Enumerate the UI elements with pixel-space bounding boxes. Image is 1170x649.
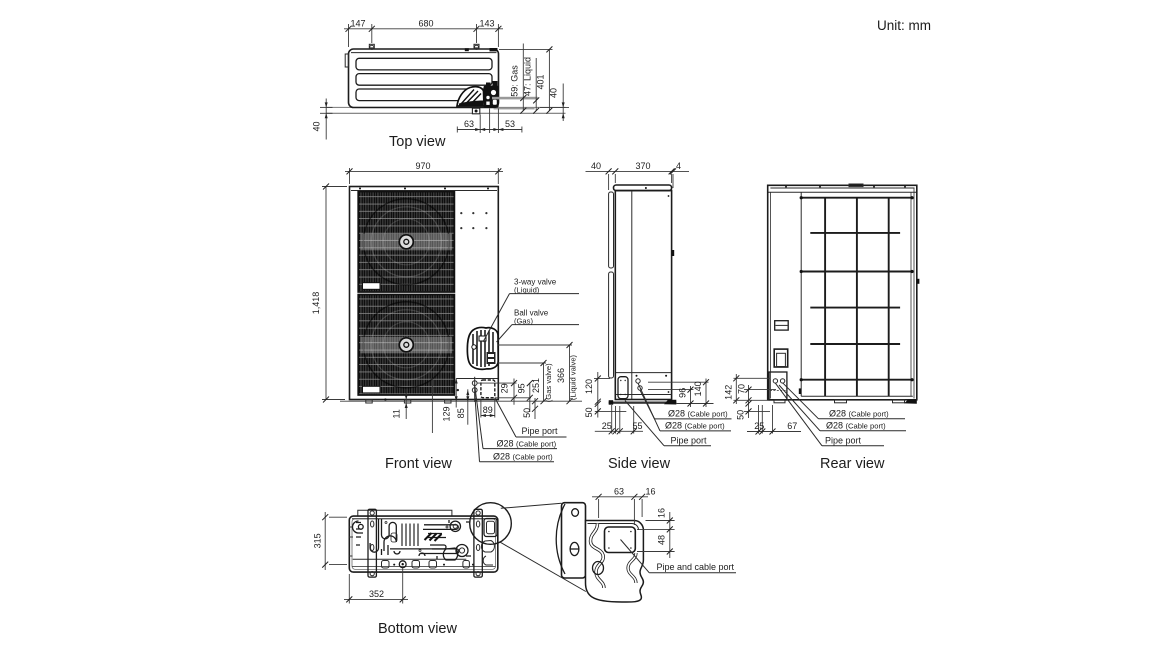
svg-text:Pipe port: Pipe port <box>671 435 708 445</box>
svg-text:680: 680 <box>418 19 433 29</box>
svg-text:Ø28 (Cable port): Ø28 (Cable port) <box>829 409 889 419</box>
svg-text:120: 120 <box>584 379 594 394</box>
svg-text:370: 370 <box>635 161 650 171</box>
svg-text:(Liquid valve): (Liquid valve) <box>568 354 577 400</box>
svg-text:50: 50 <box>584 407 594 417</box>
svg-text:70: 70 <box>736 384 746 394</box>
svg-text:40: 40 <box>591 161 601 171</box>
svg-text:Bottom view: Bottom view <box>378 621 457 637</box>
svg-text:11: 11 <box>391 409 401 418</box>
svg-text:40: 40 <box>312 121 322 131</box>
svg-text:16: 16 <box>657 508 667 518</box>
svg-text:63: 63 <box>614 486 624 496</box>
svg-text:50: 50 <box>522 408 532 418</box>
svg-text:140: 140 <box>693 381 703 396</box>
svg-text:29: 29 <box>500 383 510 393</box>
svg-text:63: 63 <box>464 119 474 129</box>
svg-text:95: 95 <box>517 383 527 393</box>
svg-text:40: 40 <box>549 88 559 98</box>
svg-text:143: 143 <box>479 19 494 29</box>
svg-text:129: 129 <box>442 406 452 421</box>
svg-text:1,418: 1,418 <box>311 292 321 315</box>
svg-text:48: 48 <box>657 535 667 545</box>
svg-text:251: 251 <box>531 378 541 393</box>
svg-text:Rear view: Rear view <box>820 456 885 472</box>
svg-text:Top view: Top view <box>389 134 446 150</box>
svg-text:366: 366 <box>556 368 566 383</box>
svg-text:Front view: Front view <box>385 456 452 472</box>
svg-text:53: 53 <box>505 119 515 129</box>
svg-text:Ø28 (Cable port): Ø28 (Cable port) <box>497 438 557 448</box>
svg-text:970: 970 <box>415 161 430 171</box>
svg-text:Ø28 (Cable port): Ø28 (Cable port) <box>668 409 728 419</box>
svg-text:Ø28 (Cable port): Ø28 (Cable port) <box>665 421 725 431</box>
svg-text:315: 315 <box>312 533 322 548</box>
svg-text:59: Gas: 59: Gas <box>509 65 519 97</box>
svg-text:(Gas valve): (Gas valve) <box>544 363 553 402</box>
svg-text:401: 401 <box>535 74 545 89</box>
svg-text:4: 4 <box>676 161 681 171</box>
svg-text:Pipe port: Pipe port <box>825 436 862 446</box>
svg-text:25: 25 <box>602 421 612 431</box>
svg-text:47: Liquid: 47: Liquid <box>522 57 532 96</box>
svg-text:85: 85 <box>456 408 466 418</box>
svg-text:16: 16 <box>645 486 655 496</box>
svg-text:Side view: Side view <box>608 456 671 472</box>
svg-text:96: 96 <box>678 388 688 398</box>
svg-text:Pipe port: Pipe port <box>522 426 559 436</box>
svg-text:25: 25 <box>754 421 764 431</box>
svg-text:352: 352 <box>369 589 384 599</box>
svg-text:67: 67 <box>787 421 797 431</box>
svg-text:142: 142 <box>724 385 734 400</box>
svg-text:Pipe and cable port: Pipe and cable port <box>657 562 735 572</box>
svg-text:147: 147 <box>350 19 365 29</box>
svg-text:50: 50 <box>735 410 745 420</box>
svg-text:Unit: mm: Unit: mm <box>877 18 931 33</box>
svg-text:55: 55 <box>632 421 642 431</box>
svg-text:Ø28 (Cable port): Ø28 (Cable port) <box>826 421 886 431</box>
svg-text:89: 89 <box>483 405 493 415</box>
svg-text:Ø28 (Cable port): Ø28 (Cable port) <box>493 451 553 461</box>
